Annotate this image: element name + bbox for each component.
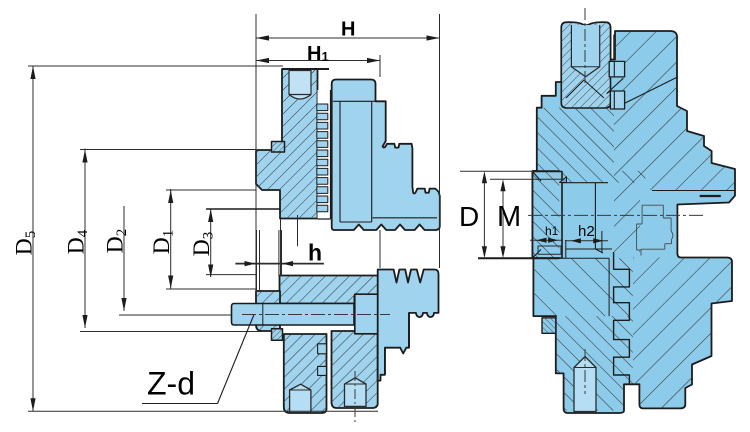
svg-text:Z-d: Z-d (147, 366, 195, 402)
svg-text:h1: h1 (545, 224, 559, 238)
svg-text:M: M (497, 201, 521, 233)
svg-text:h2: h2 (578, 223, 595, 240)
svg-text:h: h (308, 240, 322, 266)
svg-text:H: H (341, 19, 355, 41)
svg-text:D: D (459, 201, 479, 232)
